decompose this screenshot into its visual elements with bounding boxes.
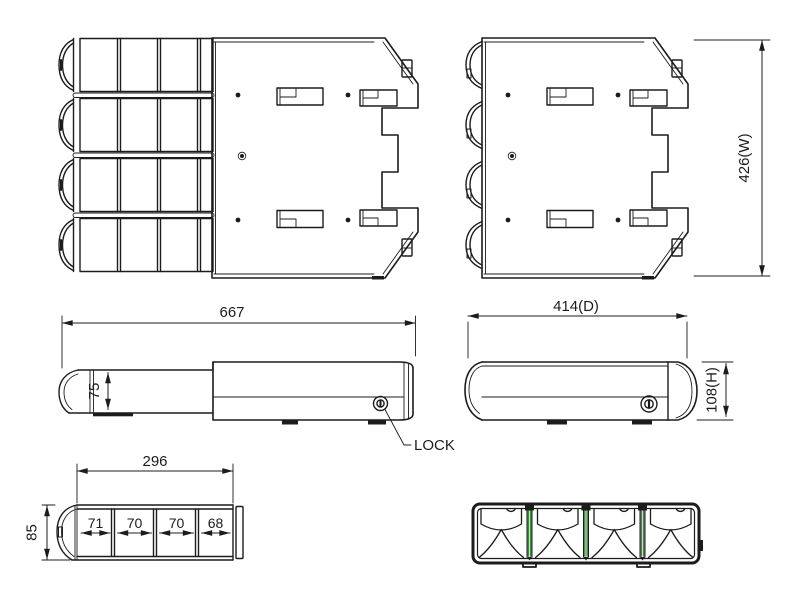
lock-leader-line [385,410,411,446]
foot [547,420,567,425]
compartment-divider [638,504,647,561]
foot [368,420,386,425]
dim-label-overall-length: 667 [219,304,244,321]
drawer-row-open [59,99,213,152]
compartment [649,510,694,558]
drawer-front-bump [466,162,482,209]
view-side-closed: 414(D) 108(H) [465,298,733,425]
foot [523,563,536,568]
dim-label-height: 108(H) [704,367,721,413]
foot [632,420,652,425]
drawer-rail [73,213,214,218]
dim-height: 108(H) [697,362,733,420]
dim-cells: 71 70 70 68 [81,515,230,533]
drawer-front-bump [466,42,482,89]
view-top-closed: 426(W) [466,38,770,280]
dim-width: 426(W) [694,40,770,276]
drawer-front-bump [466,102,482,149]
foot [282,420,298,425]
dim-label-drawer-side-height: 75 [86,383,103,400]
dim-label-cell-1: 71 [88,515,104,531]
extended-drawer [59,370,213,416]
drawer-front-bump [466,222,482,269]
dim-label-depth: 414(D) [553,298,599,315]
dim-label-drawer-width: 296 [142,453,167,470]
dim-drawer-side-height: 75 [86,373,108,410]
dim-label-cell-4: 68 [208,515,224,531]
lock-label: LOCK [414,437,455,454]
dim-drawer-width: 296 [77,453,233,503]
foot [637,563,650,568]
technical-drawing: 426(W) LOCK [0,0,800,600]
compartment [479,510,524,558]
view-front-unit [473,504,703,567]
dim-label-drawer-height: 85 [24,524,41,541]
compartment [536,510,581,558]
view-front-drawer: 296 85 71 70 70 68 [24,453,244,560]
body-outline [212,38,418,280]
dim-depth: 414(D) [468,298,687,358]
drawer-row-open [59,219,213,272]
view-side-open: LOCK 667 75 [59,304,455,454]
dim-label-width: 426(W) [736,133,753,182]
dim-overall-length: 667 [62,304,416,368]
dim-label-cell-3: 70 [169,515,185,531]
lock-icon [641,396,657,412]
drawer-row-open [59,159,213,212]
compartment [592,510,637,558]
drawer-row-open [59,39,213,92]
dim-label-cell-2: 70 [127,515,143,531]
view-top-open [59,38,418,280]
drawing-page: 426(W) LOCK [0,0,800,600]
drawer-rail [73,93,214,98]
lock-icon [374,397,388,411]
side-latch [699,540,704,551]
compartment-divider [582,504,591,561]
body-outline [482,38,688,280]
drawer-rail [73,153,214,158]
compartment-divider [525,504,534,561]
